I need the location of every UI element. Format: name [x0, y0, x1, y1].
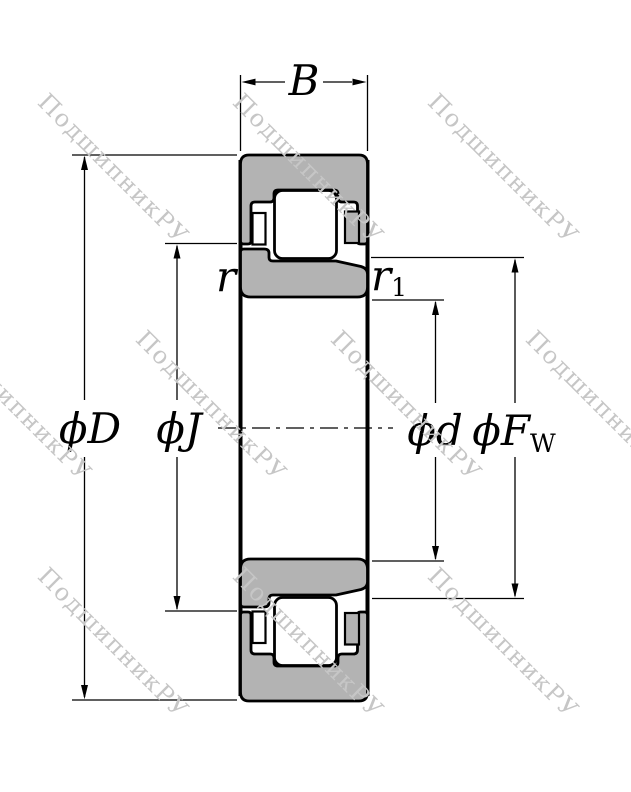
raceway-diameter-arrow-bottom — [512, 584, 519, 598]
top-section — [241, 155, 368, 297]
outer-diameter-label: ϕD — [59, 404, 121, 453]
roller-top — [275, 191, 337, 259]
roller-bottom — [275, 598, 337, 666]
cage-bar-top-left — [253, 213, 266, 245]
width-dimension-label: B — [288, 56, 320, 105]
bore-diameter-arrow-bottom — [432, 546, 439, 560]
cage-bar-top-right — [345, 212, 359, 244]
cage-bar-bottom-right — [345, 613, 359, 645]
outer-diameter-arrow-top — [81, 156, 88, 170]
outer-diameter-arrow-bottom — [81, 685, 88, 699]
drawing-canvas: B ϕD ϕJ ϕd ϕFW r r1 — [0, 0, 631, 792]
bearing-cross-section-drawing: B ϕD ϕJ ϕd ϕFW r r1 ПодшипникРУ Подшипни… — [0, 0, 631, 792]
inner-chamfer-label: r1 — [371, 251, 407, 302]
inner-chamfer-label-subscript: 1 — [391, 273, 407, 302]
raceway-diameter-arrow-top — [512, 258, 519, 272]
cage-bar-bottom-left — [253, 612, 266, 644]
raceway-diameter-label: ϕFW — [472, 406, 556, 458]
outer-chamfer-label: r — [216, 252, 239, 301]
raceway-diameter-label-base: ϕF — [472, 406, 532, 455]
pitch-diameter-label: ϕJ — [156, 404, 204, 453]
width-arrow-right — [353, 79, 367, 86]
bore-diameter-label: ϕd — [407, 406, 463, 455]
pitch-diameter-arrow-bottom — [174, 596, 181, 610]
bottom-section — [241, 559, 368, 701]
pitch-diameter-arrow-top — [174, 244, 181, 258]
width-arrow-left — [242, 79, 256, 86]
raceway-diameter-label-subscript: W — [530, 429, 556, 458]
bore-diameter-arrow-top — [432, 301, 439, 315]
